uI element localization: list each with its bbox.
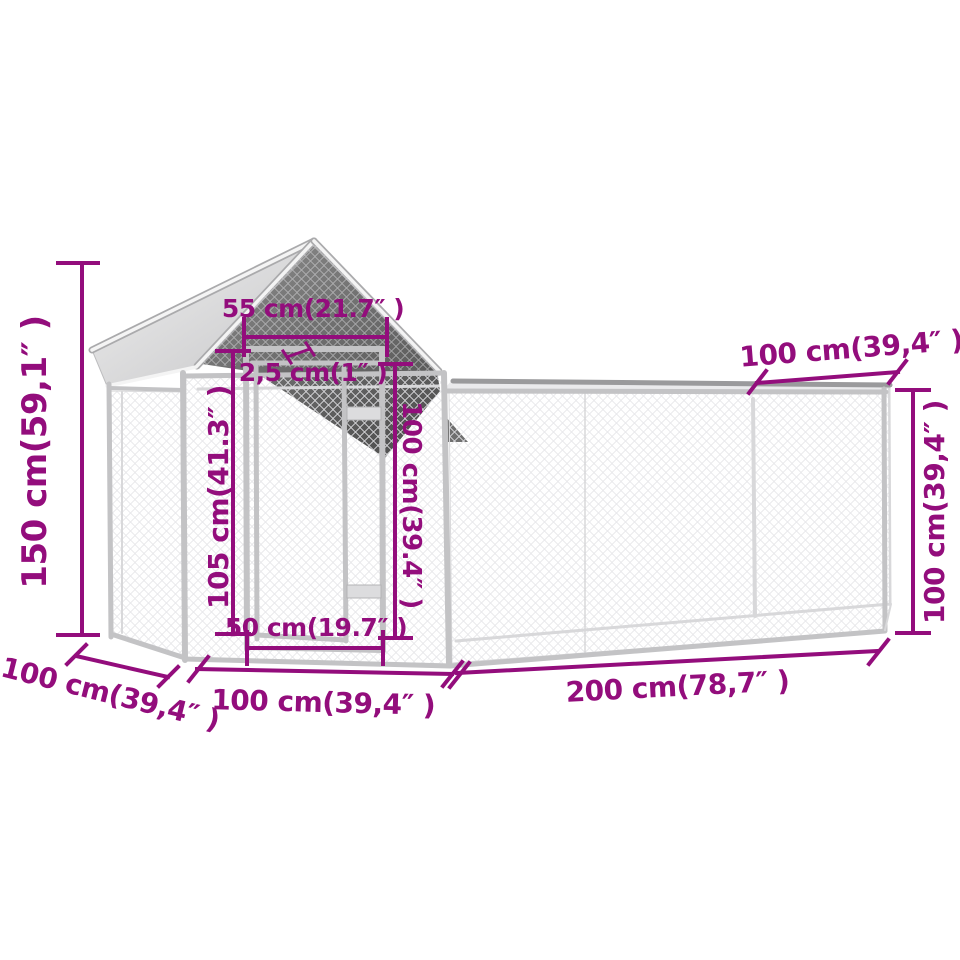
dim-run-height: 100 cm(39,4″ ) <box>897 390 951 633</box>
coop-back-left-post <box>109 384 111 637</box>
run-front-top-rail <box>444 391 886 392</box>
run-back-right-post <box>889 386 890 603</box>
door-right-stile <box>344 368 346 641</box>
door-hinge-top <box>347 407 381 420</box>
run-right-post <box>884 389 885 630</box>
door-left-stile <box>256 366 257 639</box>
dim-run-depth-line <box>757 372 898 383</box>
dim-run-length-label: 200 cm(78,7″ ) <box>565 664 790 709</box>
dim-total-height: 150 cm(59,1″ ) <box>15 263 98 635</box>
dim-total-height-label: 150 cm(59,1″ ) <box>15 315 55 588</box>
door-frame-right-post <box>382 349 383 651</box>
dim-door-height-label: 105 cm(41.3″ ) <box>202 385 235 609</box>
dim-tube-label: 2,5 cm(1″ ) <box>239 358 387 387</box>
coop-left-top-rail <box>109 388 183 390</box>
dim-roof-width-label: 55 cm(21.7″ ) <box>222 294 404 323</box>
door-frame-left-post <box>246 349 247 649</box>
coop-front-left-post <box>183 373 185 660</box>
diagram-canvas: 150 cm(59,1″ ) 55 cm(21.7″ ) 2,5 cm(1″ )… <box>0 0 960 960</box>
dim-coop-width-line <box>197 669 452 674</box>
chicken-coop-dimension-diagram: 150 cm(59,1″ ) 55 cm(21.7″ ) 2,5 cm(1″ )… <box>0 0 960 960</box>
dim-coop-depth-tick-left <box>67 645 86 664</box>
dim-run-depth-label: 100 cm(39,4″ ) <box>738 323 960 373</box>
dim-door-width-label: 50 cm(19.7″ ) <box>225 613 407 642</box>
run-back-mid-post <box>753 399 755 616</box>
dim-run-height-label: 100 cm(39,4″ ) <box>918 400 951 624</box>
door-hinge-bottom <box>347 585 381 598</box>
dim-wall-height-label: 100 cm(39.4″ ) <box>396 401 426 608</box>
dim-coop-width-label: 100 cm(39,4″ ) <box>211 683 436 722</box>
